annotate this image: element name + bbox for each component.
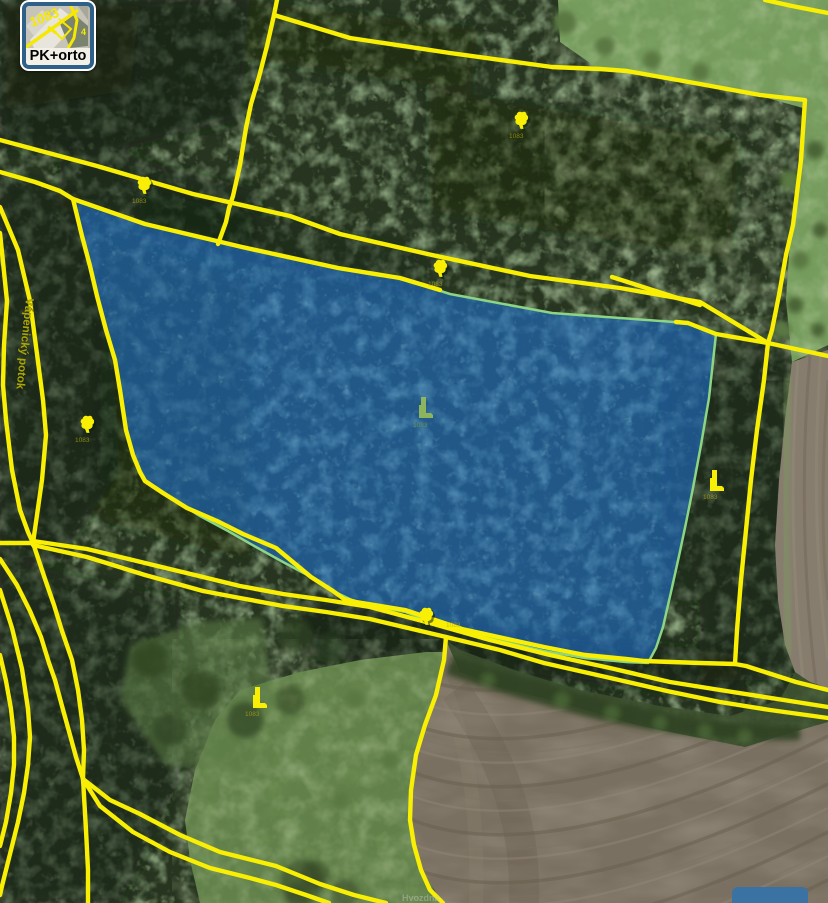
svg-text:Hvozdná: Hvozdná: [402, 893, 440, 903]
svg-text:1083: 1083: [428, 281, 443, 288]
svg-text:1083: 1083: [75, 437, 90, 444]
svg-text:1083: 1083: [509, 133, 524, 140]
svg-text:1083: 1083: [132, 198, 147, 205]
svg-text:4: 4: [81, 27, 86, 37]
svg-text:1083: 1083: [413, 422, 428, 429]
svg-text:1083: 1083: [245, 711, 260, 718]
svg-text:1083: 1083: [703, 494, 718, 501]
svg-text:1083: 1083: [446, 622, 461, 629]
